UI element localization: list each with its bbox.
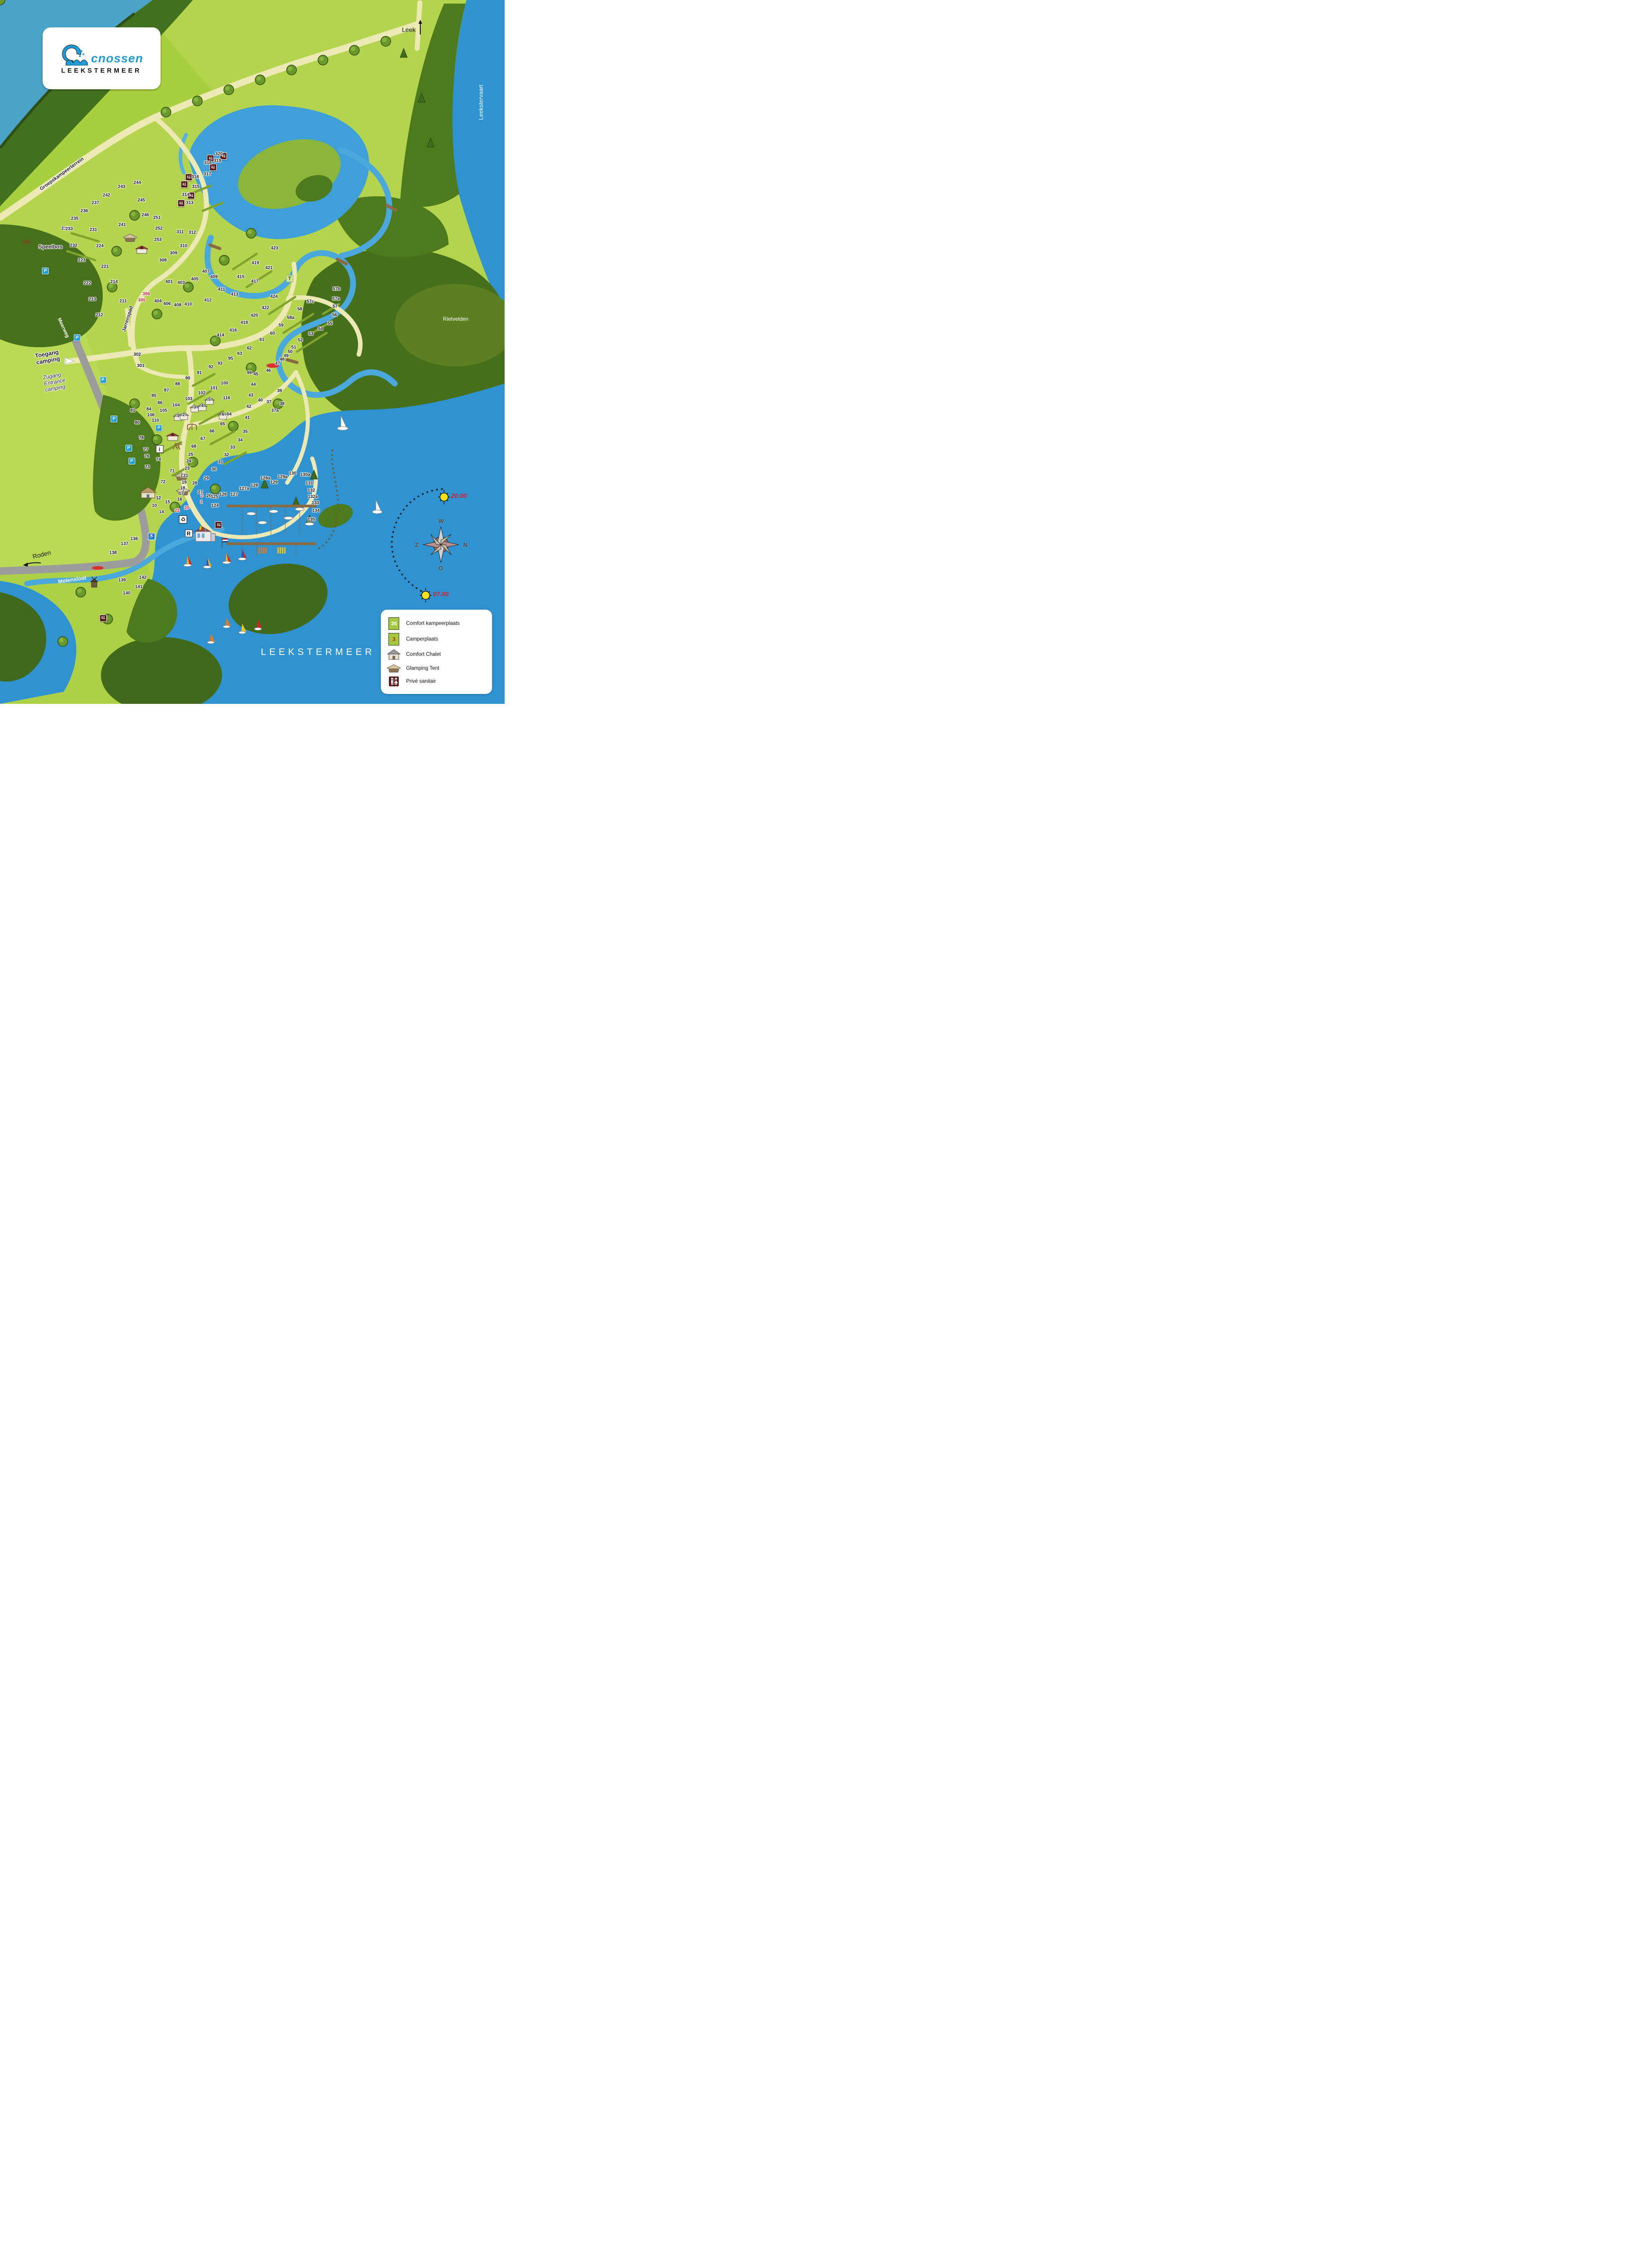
site-number-142: 142 xyxy=(139,576,147,580)
site-number-313: 313 xyxy=(186,201,194,205)
site-number-405: 405 xyxy=(191,277,199,282)
site-number-305: 305 xyxy=(138,298,146,303)
sanitair-wc-icon xyxy=(100,615,107,622)
site-number-127: 127 xyxy=(231,493,238,497)
site-number-319: 319 xyxy=(214,159,222,163)
site-number-136: 136 xyxy=(131,537,138,541)
site-number-63: 63 xyxy=(237,352,242,356)
legend-label: Privé sanitair xyxy=(406,679,436,684)
site-number-67: 67 xyxy=(201,437,205,441)
site-number-423: 423 xyxy=(271,246,279,251)
site-number-46: 46 xyxy=(266,369,271,373)
site-number-102: 102 xyxy=(198,391,206,396)
site-number-40: 40 xyxy=(258,398,263,403)
sanitair-wc-icon xyxy=(178,200,185,207)
site-number-74: 74 xyxy=(156,458,161,462)
site-number-62: 62 xyxy=(247,346,252,351)
site-number-416: 416 xyxy=(229,328,237,333)
site-number-95: 95 xyxy=(228,357,233,361)
site-number-45: 45 xyxy=(253,372,258,377)
site-number-418: 418 xyxy=(240,321,248,325)
site-number-125: 125 xyxy=(211,495,218,499)
site-number-211: 211 xyxy=(119,299,126,304)
site-number-38: 38 xyxy=(279,402,284,406)
sun-icon: 07.00 xyxy=(419,588,445,603)
site-number-91: 91 xyxy=(197,371,202,375)
site-number-35: 35 xyxy=(243,430,248,434)
site-number-312: 312 xyxy=(188,231,196,235)
parking-sign: P xyxy=(74,335,81,341)
cnossen-logo: cnossen LEEKSTERMEER xyxy=(43,27,161,89)
site-number-52: 52 xyxy=(298,338,303,343)
site-number-424: 424 xyxy=(270,295,278,299)
parking-sign: P xyxy=(100,377,106,384)
compass-north: N xyxy=(463,541,467,548)
site-number-306: 306 xyxy=(143,292,150,297)
site-number-311: 311 xyxy=(177,230,184,235)
site-number-235: 235 xyxy=(71,217,78,221)
site-number-12: 12 xyxy=(156,496,161,501)
site-number-43: 43 xyxy=(248,393,253,398)
chalet-2: 2 xyxy=(178,411,190,420)
groepskampeerterrein-label: Groepskampeerterrein xyxy=(39,156,85,192)
site-number-308: 308 xyxy=(159,258,167,263)
leek-direction-arrow xyxy=(418,20,423,35)
site-number-10: 10 xyxy=(152,504,157,508)
site-number-417: 417 xyxy=(251,279,259,284)
site-number-77: 77 xyxy=(144,448,148,452)
site-number-41: 41 xyxy=(245,416,250,420)
legend-item: 3 Camperplaats xyxy=(386,633,487,646)
site-number-242: 242 xyxy=(103,193,110,198)
site-number-221: 221 xyxy=(101,265,109,269)
sanitair-building xyxy=(135,245,148,254)
site-number-57b: 57b xyxy=(333,287,340,292)
farmhouse xyxy=(139,486,157,499)
dutch-flag xyxy=(221,538,228,548)
site-number-253: 253 xyxy=(154,238,162,242)
site-number-132a: 132a xyxy=(308,495,318,499)
site-number-233: 233 xyxy=(65,227,73,231)
site-number-20: 20 xyxy=(184,506,189,511)
site-number-302: 302 xyxy=(134,353,141,357)
site-number-19: 19 xyxy=(182,480,187,485)
site-number-61: 61 xyxy=(259,338,264,342)
site-number-243: 243 xyxy=(118,185,126,189)
site-number-413: 413 xyxy=(231,292,239,297)
site-number-138: 138 xyxy=(109,551,117,555)
site-number-47: 47 xyxy=(275,362,280,366)
legend-label: Comfort kampeerplaats xyxy=(406,621,460,626)
sanitair-building xyxy=(166,432,179,441)
site-number-15: 15 xyxy=(165,500,170,505)
site-number-64: 64 xyxy=(227,412,231,417)
site-number-99: 99 xyxy=(247,371,252,375)
recycle-icon: ♻ xyxy=(179,515,187,524)
site-number-37: 37 xyxy=(266,400,271,405)
site-number-407: 407 xyxy=(202,270,210,274)
parking-sign: P xyxy=(128,458,135,464)
site-number-33: 33 xyxy=(230,445,235,450)
site-number-130: 130 xyxy=(289,471,296,476)
site-number-241: 241 xyxy=(118,223,126,227)
swing-set-icon xyxy=(172,443,183,450)
legend-item: 36 Comfort kampeerplaats xyxy=(386,617,487,630)
site-number-48: 48 xyxy=(279,358,284,362)
site-number-129a: 129a xyxy=(278,475,288,480)
playground-icon xyxy=(186,423,198,431)
speelbos-label: Speelbos xyxy=(39,244,62,250)
site-number-403: 403 xyxy=(178,281,185,285)
chalet-icon xyxy=(386,649,401,660)
legend-label: Comfort Chalet xyxy=(406,652,440,657)
leekstervaart-label: Leekstervaart xyxy=(478,84,485,120)
site-number-126: 126 xyxy=(219,493,227,497)
site-number-93: 93 xyxy=(218,362,222,366)
site-number-39: 39 xyxy=(277,389,282,393)
site-number-422: 422 xyxy=(262,306,269,310)
site-number-22: 22 xyxy=(174,509,179,513)
site-number-60: 60 xyxy=(270,332,275,336)
site-number-44: 44 xyxy=(251,383,256,387)
site-number-57c: 57c xyxy=(307,300,314,304)
leek-road-label: Leek xyxy=(402,26,415,33)
compass-west: W xyxy=(438,518,444,524)
site-number-55: 55 xyxy=(327,322,332,326)
site-number-32: 32 xyxy=(224,453,229,458)
legend-item: Comfort Chalet xyxy=(386,649,487,660)
site-number-105: 105 xyxy=(160,409,167,413)
site-number-16: 16 xyxy=(177,497,182,502)
site-number-54: 54 xyxy=(318,327,323,332)
site-number-28: 28 xyxy=(192,481,197,486)
site-number-245: 245 xyxy=(138,198,145,203)
site-number-232: 232 xyxy=(70,244,78,248)
site-number-137: 137 xyxy=(121,542,129,546)
site-number-2: 2 xyxy=(201,494,203,498)
site-number-73: 73 xyxy=(145,465,150,470)
chalet-5: 5 xyxy=(204,396,215,405)
site-number-24: 24 xyxy=(186,459,191,464)
site-number-31: 31 xyxy=(218,460,223,465)
parking-sign: P xyxy=(111,415,118,422)
site-number-66: 66 xyxy=(209,429,214,434)
site-number-100: 100 xyxy=(221,381,228,386)
t-sign: T xyxy=(286,275,293,282)
site-number-76: 76 xyxy=(144,454,149,459)
speelbos-logs-icon xyxy=(22,238,32,244)
site-number-415: 415 xyxy=(237,275,244,279)
site-number-133: 133 xyxy=(312,501,319,506)
site-number-252: 252 xyxy=(155,227,163,231)
site-number-84: 84 xyxy=(146,407,151,412)
site-number-420: 420 xyxy=(251,314,258,318)
roden-road-label: Roden xyxy=(32,549,52,561)
site-number-140: 140 xyxy=(123,591,131,596)
site-number-414: 414 xyxy=(217,333,224,338)
site-number-53: 53 xyxy=(308,332,313,336)
site-number-222: 222 xyxy=(83,281,91,286)
site-number-110: 110 xyxy=(152,419,159,423)
compass-east: O xyxy=(438,565,443,572)
site-number-85: 85 xyxy=(152,394,157,398)
site-number-90: 90 xyxy=(185,376,190,381)
site-number-56: 56 xyxy=(332,313,337,318)
sun-icon: 20.00 xyxy=(438,489,463,505)
compass-rose: W N O Z xyxy=(422,525,460,564)
site-number-87: 87 xyxy=(164,388,169,393)
entrance-arrow xyxy=(63,357,75,366)
wave-icon xyxy=(60,42,88,65)
site-number-231: 231 xyxy=(90,228,97,232)
legend-item: Privé sanitair xyxy=(386,676,487,686)
site-number-421: 421 xyxy=(265,266,273,271)
site-number-103: 103 xyxy=(185,397,192,401)
site-number-124: 124 xyxy=(211,504,219,508)
site-number-406: 406 xyxy=(163,302,171,306)
site-number-58a: 58a xyxy=(287,316,295,320)
site-number-72: 72 xyxy=(161,480,166,484)
camper-pitch-icon: 3 xyxy=(388,633,399,646)
site-number-14: 14 xyxy=(159,510,164,515)
site-number-244: 244 xyxy=(134,181,141,185)
compass-south: Z xyxy=(415,541,418,548)
site-number-224: 224 xyxy=(96,244,104,249)
site-number-412: 412 xyxy=(204,298,212,303)
roden-direction-arrow xyxy=(23,561,41,567)
site-number-251: 251 xyxy=(153,216,161,220)
brand-name: cnossen xyxy=(91,52,144,65)
legend-label: Camperplaats xyxy=(406,637,438,642)
prive-sanitair-icon xyxy=(386,676,401,686)
glamping-tent xyxy=(122,233,138,243)
site-number-132: 132 xyxy=(308,489,315,493)
site-number-42: 42 xyxy=(246,405,251,409)
zugang-entrance-label: Zugang Entrance camping xyxy=(42,371,66,393)
site-number-408: 408 xyxy=(174,303,182,308)
site-number-309: 309 xyxy=(170,251,178,256)
site-number-410: 410 xyxy=(184,302,192,307)
site-number-59: 59 xyxy=(279,323,283,328)
reception-sign: R xyxy=(185,530,192,537)
site-number-57a: 57a xyxy=(332,297,340,301)
site-number-214: 214 xyxy=(110,280,118,284)
site-number-223: 223 xyxy=(78,258,86,263)
site-number-57: 57 xyxy=(332,305,337,309)
site-number-314: 314 xyxy=(182,193,190,197)
site-number-315: 315 xyxy=(192,185,200,189)
site-number-78: 78 xyxy=(139,436,144,441)
windmill-shed xyxy=(88,576,100,588)
site-number-213: 213 xyxy=(89,297,96,302)
parking-sign: P xyxy=(125,445,132,452)
site-number-316: 316 xyxy=(192,175,199,179)
site-number-1: 1 xyxy=(200,500,203,505)
site-number-68: 68 xyxy=(191,445,196,449)
jarrenspad-label: Jarrenspad xyxy=(121,305,134,332)
leekstermeer-label: LEEKSTERMEER xyxy=(261,647,375,658)
site-number-301: 301 xyxy=(137,364,145,368)
rietvelden-label: Rietvelden xyxy=(443,316,469,323)
site-number-246: 246 xyxy=(142,213,149,218)
site-number-320: 320 xyxy=(215,152,223,157)
legend-item: Glamping Tent xyxy=(386,663,487,673)
restaurant-building xyxy=(193,525,217,543)
site-number-134: 134 xyxy=(312,509,320,513)
toegang-camping-label: Toegang camping xyxy=(35,349,61,367)
site-number-86: 86 xyxy=(157,401,162,406)
legend-label: Glamping Tent xyxy=(406,666,439,671)
site-number-18: 18 xyxy=(180,486,185,491)
site-number-128: 128 xyxy=(251,484,258,488)
disabled-access-icon: ♿ xyxy=(148,533,155,540)
site-number-29: 29 xyxy=(204,476,209,481)
site-number-92: 92 xyxy=(209,365,214,370)
meerweg-label: Meerweg xyxy=(56,317,70,339)
site-number-409: 409 xyxy=(210,275,218,279)
brand-subtitle: LEEKSTERMEER xyxy=(61,67,142,74)
site-number-139: 139 xyxy=(118,578,126,583)
site-number-129: 129 xyxy=(270,480,278,485)
site-number-65: 65 xyxy=(220,422,225,427)
site-number-127a: 127a xyxy=(239,487,249,491)
site-number-81: 81 xyxy=(130,409,135,413)
site-number-411: 411 xyxy=(218,288,225,292)
site-number-104: 104 xyxy=(172,403,180,408)
site-number-128a: 128a xyxy=(261,476,270,481)
site-number-58: 58 xyxy=(297,307,302,312)
site-number-237: 237 xyxy=(92,201,99,205)
parking-sign: P xyxy=(156,424,162,431)
glamping-tent-icon xyxy=(386,663,401,673)
site-number-37a: 37a xyxy=(271,409,279,413)
info-sign: i xyxy=(156,445,163,453)
site-number-23: 23 xyxy=(185,467,190,471)
site-number-71: 71 xyxy=(170,469,174,474)
comfort-pitch-icon: 36 xyxy=(388,617,399,630)
site-number-419: 419 xyxy=(252,261,259,266)
site-number-135: 135 xyxy=(308,518,315,522)
campsite-map: 3203193183173163153143133123113103093083… xyxy=(0,0,505,704)
site-number-404: 404 xyxy=(154,299,162,304)
site-number-401: 401 xyxy=(166,280,173,284)
site-number-17: 17 xyxy=(179,492,183,496)
site-number-80: 80 xyxy=(135,421,139,425)
site-number-25: 25 xyxy=(188,453,193,457)
site-number-130a: 130a xyxy=(301,473,310,477)
site-number-236: 236 xyxy=(81,209,88,214)
compass-star xyxy=(422,525,460,564)
site-number-34: 34 xyxy=(238,438,243,443)
molensloot-label: Molensloot xyxy=(58,575,87,585)
sanitair-wc-icon xyxy=(181,181,188,188)
site-number-116: 116 xyxy=(223,396,230,401)
site-number-131: 131 xyxy=(305,481,313,486)
site-number-317: 317 xyxy=(204,172,211,177)
site-number-101: 101 xyxy=(210,386,218,391)
site-number-310: 310 xyxy=(180,244,187,249)
map-legend: 36 Comfort kampeerplaats 3 Camperplaats … xyxy=(381,610,492,694)
site-number-21: 21 xyxy=(183,474,188,478)
site-number-141: 141 xyxy=(135,585,143,589)
site-number-88: 88 xyxy=(175,382,180,387)
site-number-318: 318 xyxy=(204,161,212,166)
parking-sign: P xyxy=(42,268,49,275)
site-number-106: 106 xyxy=(147,413,155,418)
site-number-30: 30 xyxy=(211,467,216,472)
site-number-212: 212 xyxy=(96,313,103,318)
